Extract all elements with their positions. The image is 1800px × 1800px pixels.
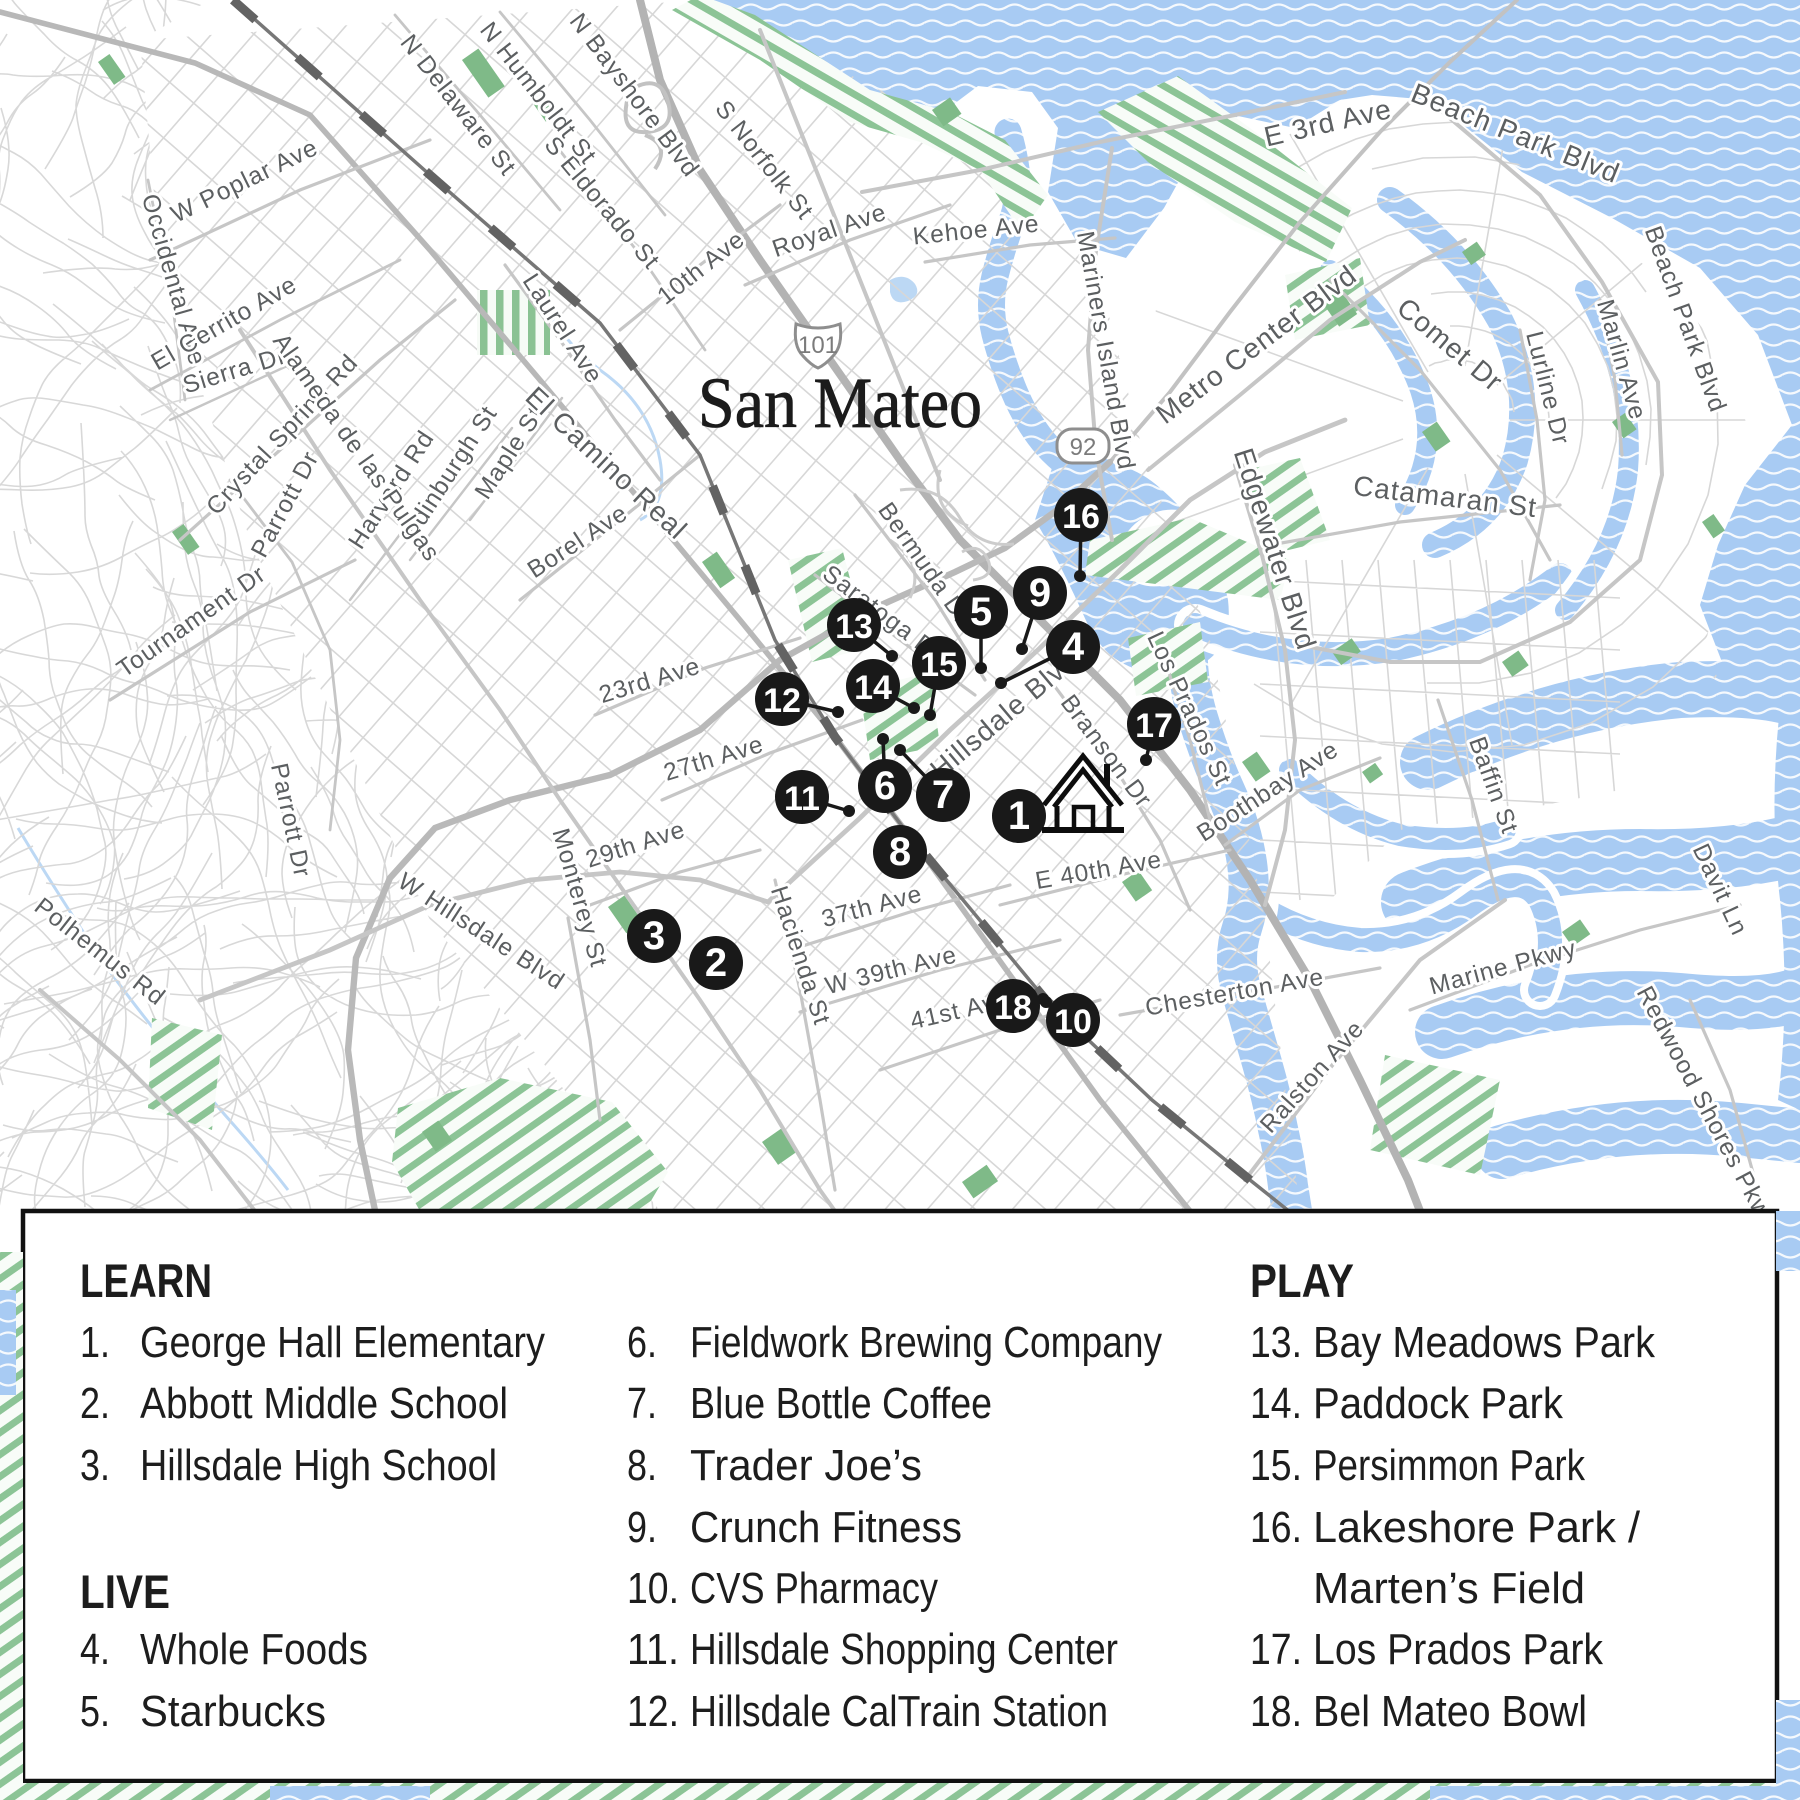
svg-text:101: 101 <box>798 332 838 359</box>
svg-text:18: 18 <box>994 989 1032 1027</box>
svg-text:3: 3 <box>643 914 665 958</box>
svg-text:1: 1 <box>1008 794 1030 838</box>
svg-text:11.: 11. <box>627 1625 679 1674</box>
svg-text:17: 17 <box>1135 707 1173 745</box>
svg-text:10.: 10. <box>627 1564 679 1613</box>
svg-text:3.: 3. <box>80 1441 110 1490</box>
svg-text:1.: 1. <box>80 1318 110 1367</box>
svg-text:Abbott Middle School: Abbott Middle School <box>140 1379 508 1428</box>
svg-text:92: 92 <box>1070 434 1097 461</box>
svg-text:Hillsdale High School: Hillsdale High School <box>140 1441 497 1490</box>
svg-text:CVS Pharmacy: CVS Pharmacy <box>690 1564 938 1613</box>
svg-text:LEARN: LEARN <box>80 1254 212 1307</box>
svg-text:Lakeshore Park /: Lakeshore Park / <box>1313 1503 1641 1552</box>
svg-text:18.: 18. <box>1250 1687 1302 1736</box>
svg-text:4: 4 <box>1062 625 1085 669</box>
svg-text:4.: 4. <box>80 1625 110 1674</box>
svg-text:Hillsdale Shopping Center: Hillsdale Shopping Center <box>690 1625 1118 1674</box>
svg-text:12.: 12. <box>627 1687 679 1736</box>
svg-text:Persimmon Park: Persimmon Park <box>1313 1441 1586 1490</box>
svg-text:Whole Foods: Whole Foods <box>140 1625 368 1674</box>
svg-text:13.: 13. <box>1250 1318 1302 1367</box>
svg-text:Los Prados Park: Los Prados Park <box>1313 1625 1604 1674</box>
svg-text:2.: 2. <box>80 1379 110 1428</box>
svg-text:Bay Meadows Park: Bay Meadows Park <box>1313 1318 1656 1367</box>
svg-text:16.: 16. <box>1250 1503 1302 1552</box>
svg-text:14.: 14. <box>1250 1379 1302 1428</box>
svg-text:7: 7 <box>932 773 954 817</box>
svg-text:11: 11 <box>784 780 820 818</box>
svg-text:9.: 9. <box>627 1503 657 1552</box>
svg-text:Bel Mateo Bowl: Bel Mateo Bowl <box>1313 1687 1587 1736</box>
svg-text:5: 5 <box>970 590 992 634</box>
svg-text:6.: 6. <box>627 1318 657 1367</box>
svg-text:17.: 17. <box>1250 1625 1302 1674</box>
svg-text:Trader Joe’s: Trader Joe’s <box>690 1441 922 1490</box>
svg-text:14: 14 <box>854 669 892 707</box>
svg-text:5.: 5. <box>80 1687 110 1736</box>
svg-text:Crunch Fitness: Crunch Fitness <box>690 1503 962 1552</box>
svg-text:San Mateo: San Mateo <box>698 363 982 443</box>
svg-text:13: 13 <box>835 608 873 646</box>
svg-text:Marten’s Field: Marten’s Field <box>1313 1564 1585 1613</box>
svg-text:LIVE: LIVE <box>80 1565 170 1618</box>
svg-text:PLAY: PLAY <box>1250 1254 1354 1307</box>
svg-text:7.: 7. <box>627 1379 657 1428</box>
svg-text:George Hall Elementary: George Hall Elementary <box>140 1318 545 1367</box>
svg-text:15.: 15. <box>1250 1441 1302 1490</box>
svg-text:9: 9 <box>1029 571 1051 615</box>
svg-text:Starbucks: Starbucks <box>140 1687 326 1736</box>
svg-text:Blue Bottle Coffee: Blue Bottle Coffee <box>690 1379 992 1428</box>
svg-text:6: 6 <box>874 764 896 808</box>
svg-text:Fieldwork Brewing Company: Fieldwork Brewing Company <box>690 1318 1162 1367</box>
svg-text:10: 10 <box>1054 1003 1092 1041</box>
svg-text:12: 12 <box>763 682 801 720</box>
svg-text:8.: 8. <box>627 1441 657 1490</box>
svg-text:15: 15 <box>920 646 958 684</box>
svg-text:Hillsdale CalTrain Station: Hillsdale CalTrain Station <box>690 1687 1108 1736</box>
svg-text:8: 8 <box>889 830 911 874</box>
svg-text:2: 2 <box>705 941 727 985</box>
svg-text:Paddock Park: Paddock Park <box>1313 1379 1564 1428</box>
svg-text:16: 16 <box>1062 498 1100 536</box>
